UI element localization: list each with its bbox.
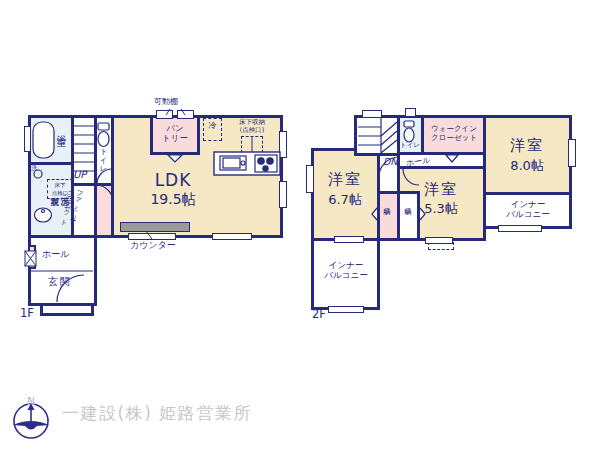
window: [328, 306, 364, 313]
window: [128, 233, 176, 240]
room-1f-family-closet: [94, 183, 114, 238]
window: [279, 181, 287, 208]
label-toilet-2f: トイレ: [397, 142, 423, 150]
shoe-cabinet: [28, 245, 36, 269]
room-1f-hall-entrance: [28, 235, 97, 306]
label-fridge: 冷: [203, 121, 222, 131]
window: [24, 126, 31, 152]
floorplan-canvas: 浴室 洗 床下 点検口 洗面・ 脱衣室 UP トイレ ファミリー クローゼット …: [0, 0, 600, 450]
label-bedroom-b: 洋室: [317, 170, 373, 188]
label-pantry: パン トリー: [152, 123, 198, 143]
label-inner-balcony-right: インナー バルコニー: [487, 199, 569, 219]
label-walkin-closet: ウォークイン クローゼット: [423, 124, 485, 142]
label-bathroom: 浴室: [56, 127, 67, 131]
window: [362, 110, 382, 118]
label-inner-balcony-left: インナー バルコニー: [314, 260, 378, 280]
label-entrance: 玄関: [48, 276, 72, 288]
room-2f-bedroom-8-0: [483, 115, 572, 195]
label-closet-left: 収納: [382, 202, 390, 236]
logo-hull: [13, 421, 49, 430]
label-closet-right: 収納: [403, 202, 411, 236]
label-ldk-size: 19.5帖: [138, 191, 208, 208]
label-hall-1f: ホール: [42, 249, 69, 260]
ldk-counter-bar: [120, 222, 190, 232]
window: [405, 108, 416, 117]
company-logo: N: [8, 396, 54, 442]
window: [279, 131, 287, 158]
room-2f-stairs: [354, 115, 400, 156]
movable-shelf-mark: [177, 110, 194, 119]
logo-letter: N: [27, 396, 34, 407]
room-2f-toilet: [397, 115, 424, 156]
label-ldk: LDK: [138, 170, 208, 190]
company-name: 一建設(株) 姫路営業所: [62, 402, 252, 425]
window: [498, 225, 542, 232]
movable-shelf-mark: [156, 110, 173, 119]
label-stairs-dn: DN: [383, 156, 397, 167]
label-bedroom-b-size: 6.7帖: [317, 192, 373, 208]
label-washer: 洗: [31, 165, 38, 173]
label-movable-shelf: 可動棚: [154, 97, 178, 107]
label-floor-1f: 1F: [20, 307, 34, 321]
label-bedroom-c: 洋室: [413, 180, 469, 198]
window: [425, 237, 453, 244]
label-toilet-1f: トイレ: [99, 143, 108, 169]
underfloor-storage-box: [241, 136, 263, 153]
window: [212, 233, 252, 240]
window: [306, 165, 314, 193]
label-bedroom-c-size: 5.3帖: [413, 201, 469, 217]
label-stairs-up: UP: [73, 169, 86, 181]
label-bedroom-a-size: 8.0帖: [499, 158, 555, 174]
room-1f-bathroom: [28, 115, 74, 165]
label-counter: カウンター: [130, 240, 176, 251]
window: [568, 139, 576, 167]
label-underfloor-storage: 床下収納 (点検口): [230, 119, 274, 135]
window: [334, 236, 364, 243]
label-floor-2f: 2F: [312, 308, 326, 322]
label-bedroom-a: 洋室: [499, 136, 555, 154]
